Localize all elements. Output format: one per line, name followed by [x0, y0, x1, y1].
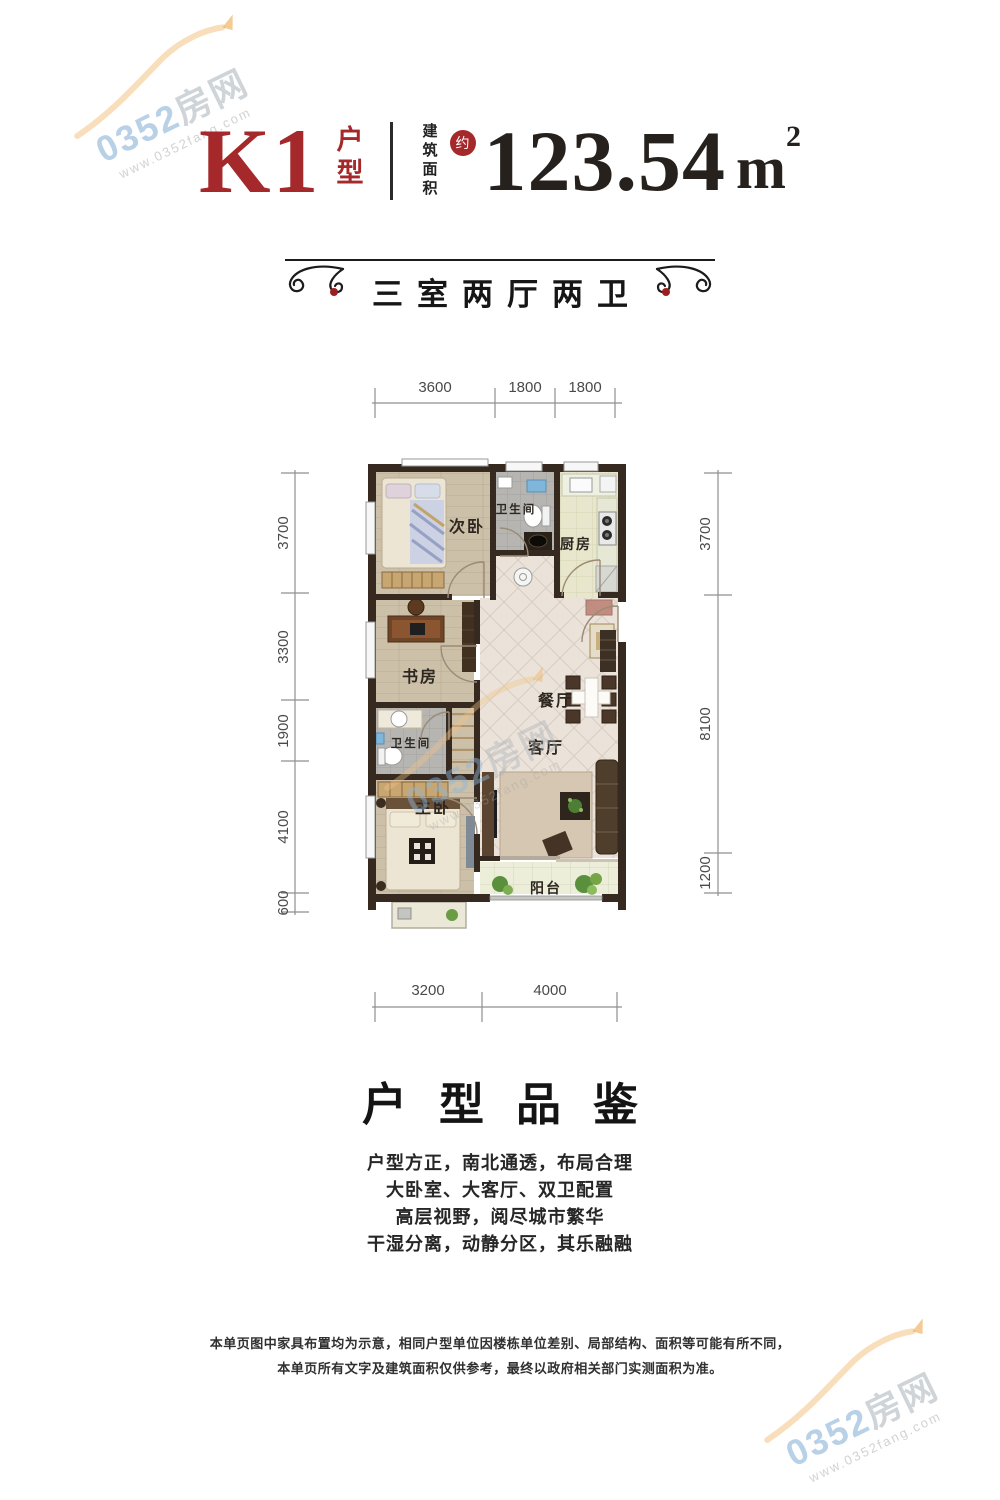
- dim-right-2: 8100: [697, 707, 714, 740]
- dim-left-4: 4100: [275, 810, 292, 843]
- room-label-balcony: 阳台: [530, 880, 562, 897]
- detail-line: 大卧室、大客厅、双卫配置: [0, 1177, 1000, 1204]
- dim-left-5: 600: [275, 890, 292, 915]
- area-label: 建筑面积: [419, 123, 440, 199]
- dim-top-2: 1800: [508, 379, 541, 396]
- red-dot-left: [330, 288, 338, 296]
- disclaimer-line-1: 本单页图中家具布置均为示意，相同户型单位因楼栋单位差别、局部结构、面积等可能有所…: [0, 1331, 1000, 1356]
- area-exponent: 2: [786, 120, 801, 153]
- layout-banner: 三室两厅两卫: [285, 253, 715, 325]
- disclaimer-line-2: 本单页所有文字及建筑面积仅供参考，最终以政府相关部门实测面积为准。: [0, 1356, 1000, 1381]
- dim-top-1: 3600: [418, 379, 451, 396]
- room-label-master: 主卧: [415, 798, 451, 817]
- dim-bottom-1: 3200: [411, 982, 444, 999]
- dim-left-2: 3300: [275, 630, 292, 663]
- dim-left-1: 3700: [275, 516, 292, 549]
- room-label-bath1: 卫生间: [496, 502, 537, 516]
- room-label-study: 书房: [402, 667, 438, 686]
- details-lines: 户型方正，南北通透，布局合理 大卧室、大客厅、双卫配置 高层视野，阅尽城市繁华 …: [0, 1150, 1000, 1258]
- red-dot-right: [662, 288, 670, 296]
- unit-code: K1: [199, 120, 321, 203]
- dim-right-1: 3700: [697, 517, 714, 550]
- flyer-page: 0352房网 www.0352fang.com K1 户型 建筑面积 约 123…: [0, 0, 1000, 1500]
- room-label-dining: 餐厅: [537, 691, 574, 710]
- disclaimer: 本单页图中家具布置均为示意，相同户型单位因楼栋单位差别、局部结构、面积等可能有所…: [0, 1331, 1000, 1381]
- dim-top-3: 1800: [568, 379, 601, 396]
- title-divider: [390, 122, 393, 200]
- detail-line: 高层视野，阅尽城市繁华: [0, 1204, 1000, 1231]
- watermark-brand: 0352房网: [781, 1368, 944, 1472]
- watermark-url: www.0352fang.com: [807, 1408, 944, 1485]
- room-label-bedroom2: 次卧: [449, 517, 485, 536]
- floor-plan: 3600 1800 1800 3200 4000 3700 3300 1900 …: [260, 360, 740, 1040]
- unit-label: 户型: [329, 125, 368, 197]
- dim-right-3: 1200: [697, 856, 714, 889]
- room-label-living: 客厅: [528, 738, 564, 757]
- banner-line: [285, 259, 715, 261]
- details-heading: 户型品鉴: [0, 1068, 1000, 1133]
- dim-left-3: 1900: [275, 714, 292, 747]
- room-label-kitchen: 厨房: [560, 536, 592, 553]
- area-unit: m2: [736, 120, 801, 203]
- approx-badge: 约: [450, 130, 476, 156]
- room-label-bath2: 卫生间: [391, 736, 432, 750]
- detail-line: 户型方正，南北通透，布局合理: [0, 1150, 1000, 1177]
- dim-bottom-2: 4000: [533, 982, 566, 999]
- dimensions-bottom: [372, 992, 622, 1022]
- area-value: 123.54: [484, 118, 727, 204]
- title-block: K1 户型 建筑面积 约 123.54 m2: [0, 118, 1000, 204]
- detail-line: 干湿分离，动静分区，其乐融融: [0, 1231, 1000, 1258]
- layout-text: 三室两厅两卫: [358, 269, 642, 314]
